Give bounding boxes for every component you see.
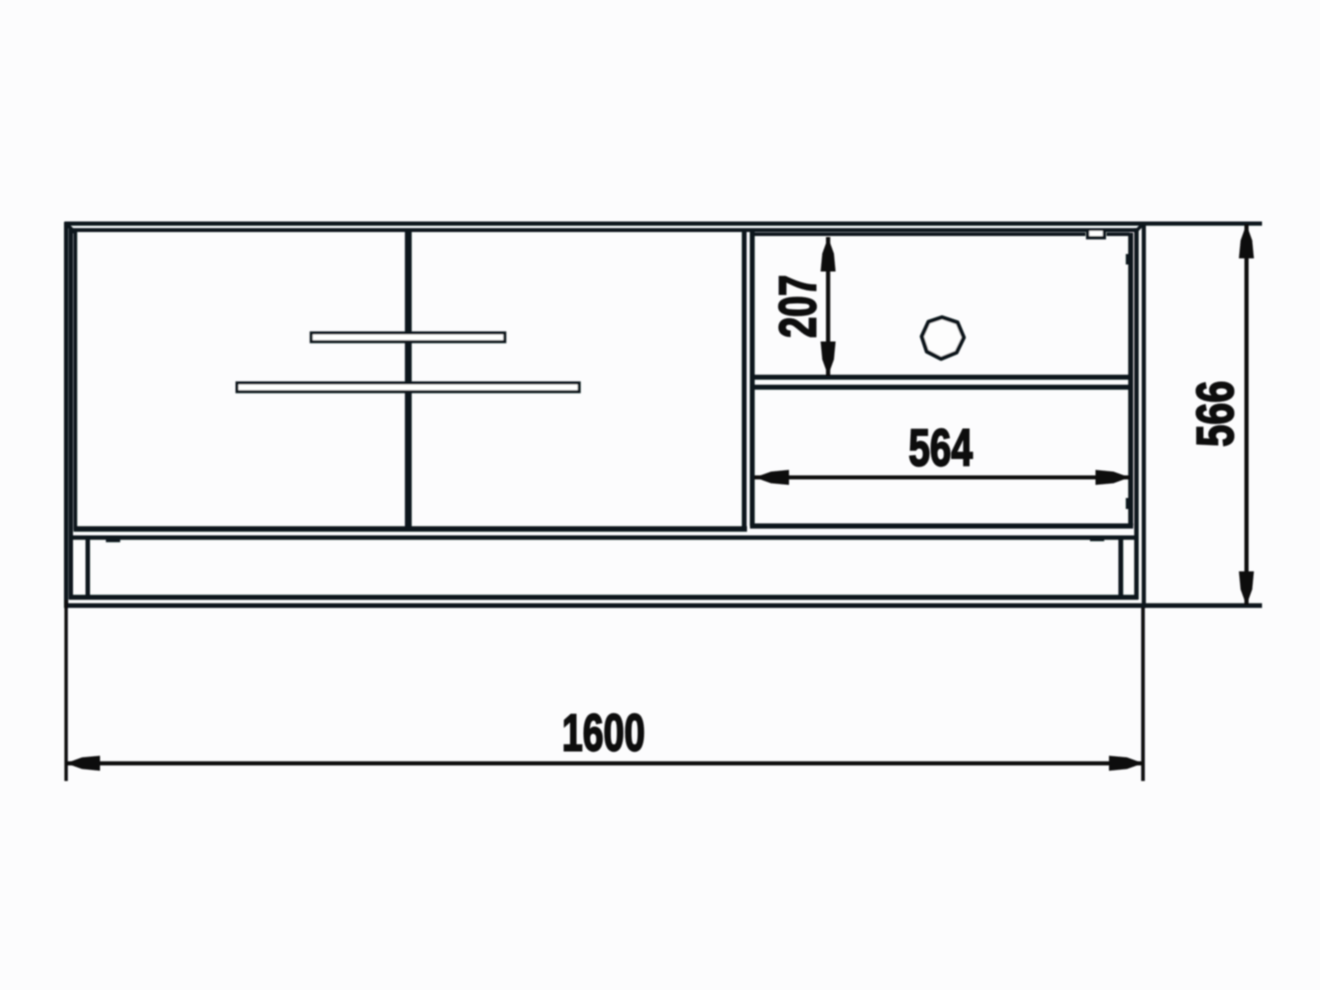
svg-text:1600: 1600 [562, 705, 645, 763]
svg-text:564: 564 [909, 420, 973, 478]
svg-text:207: 207 [769, 275, 827, 338]
svg-text:566: 566 [1187, 381, 1245, 447]
